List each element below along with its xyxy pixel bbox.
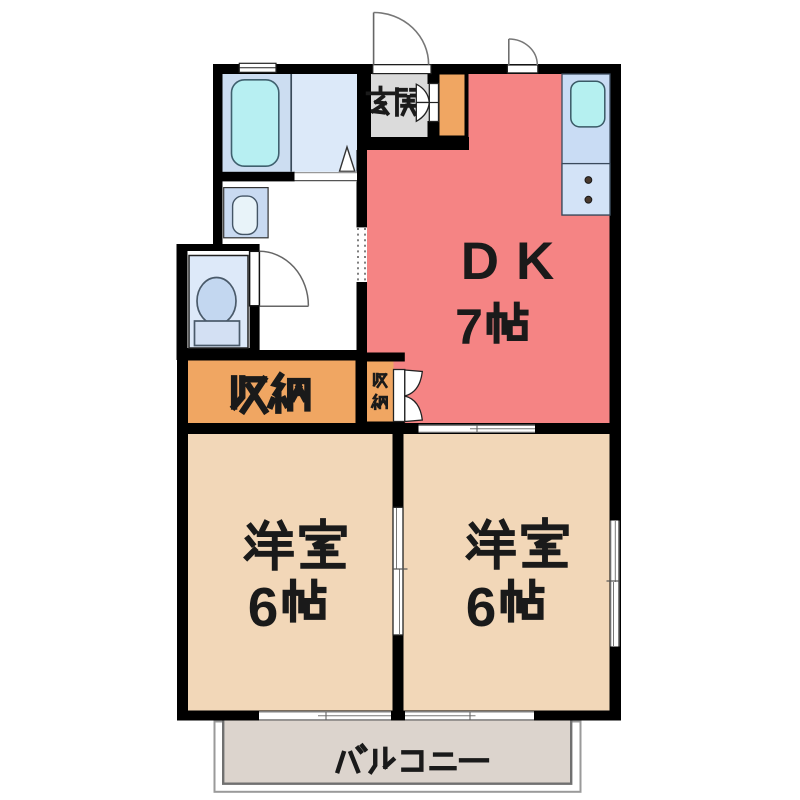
- svg-text:6: 6: [466, 576, 497, 638]
- svg-text:6: 6: [248, 576, 279, 638]
- svg-text:DK: DK: [461, 232, 572, 291]
- svg-text:7: 7: [455, 299, 483, 355]
